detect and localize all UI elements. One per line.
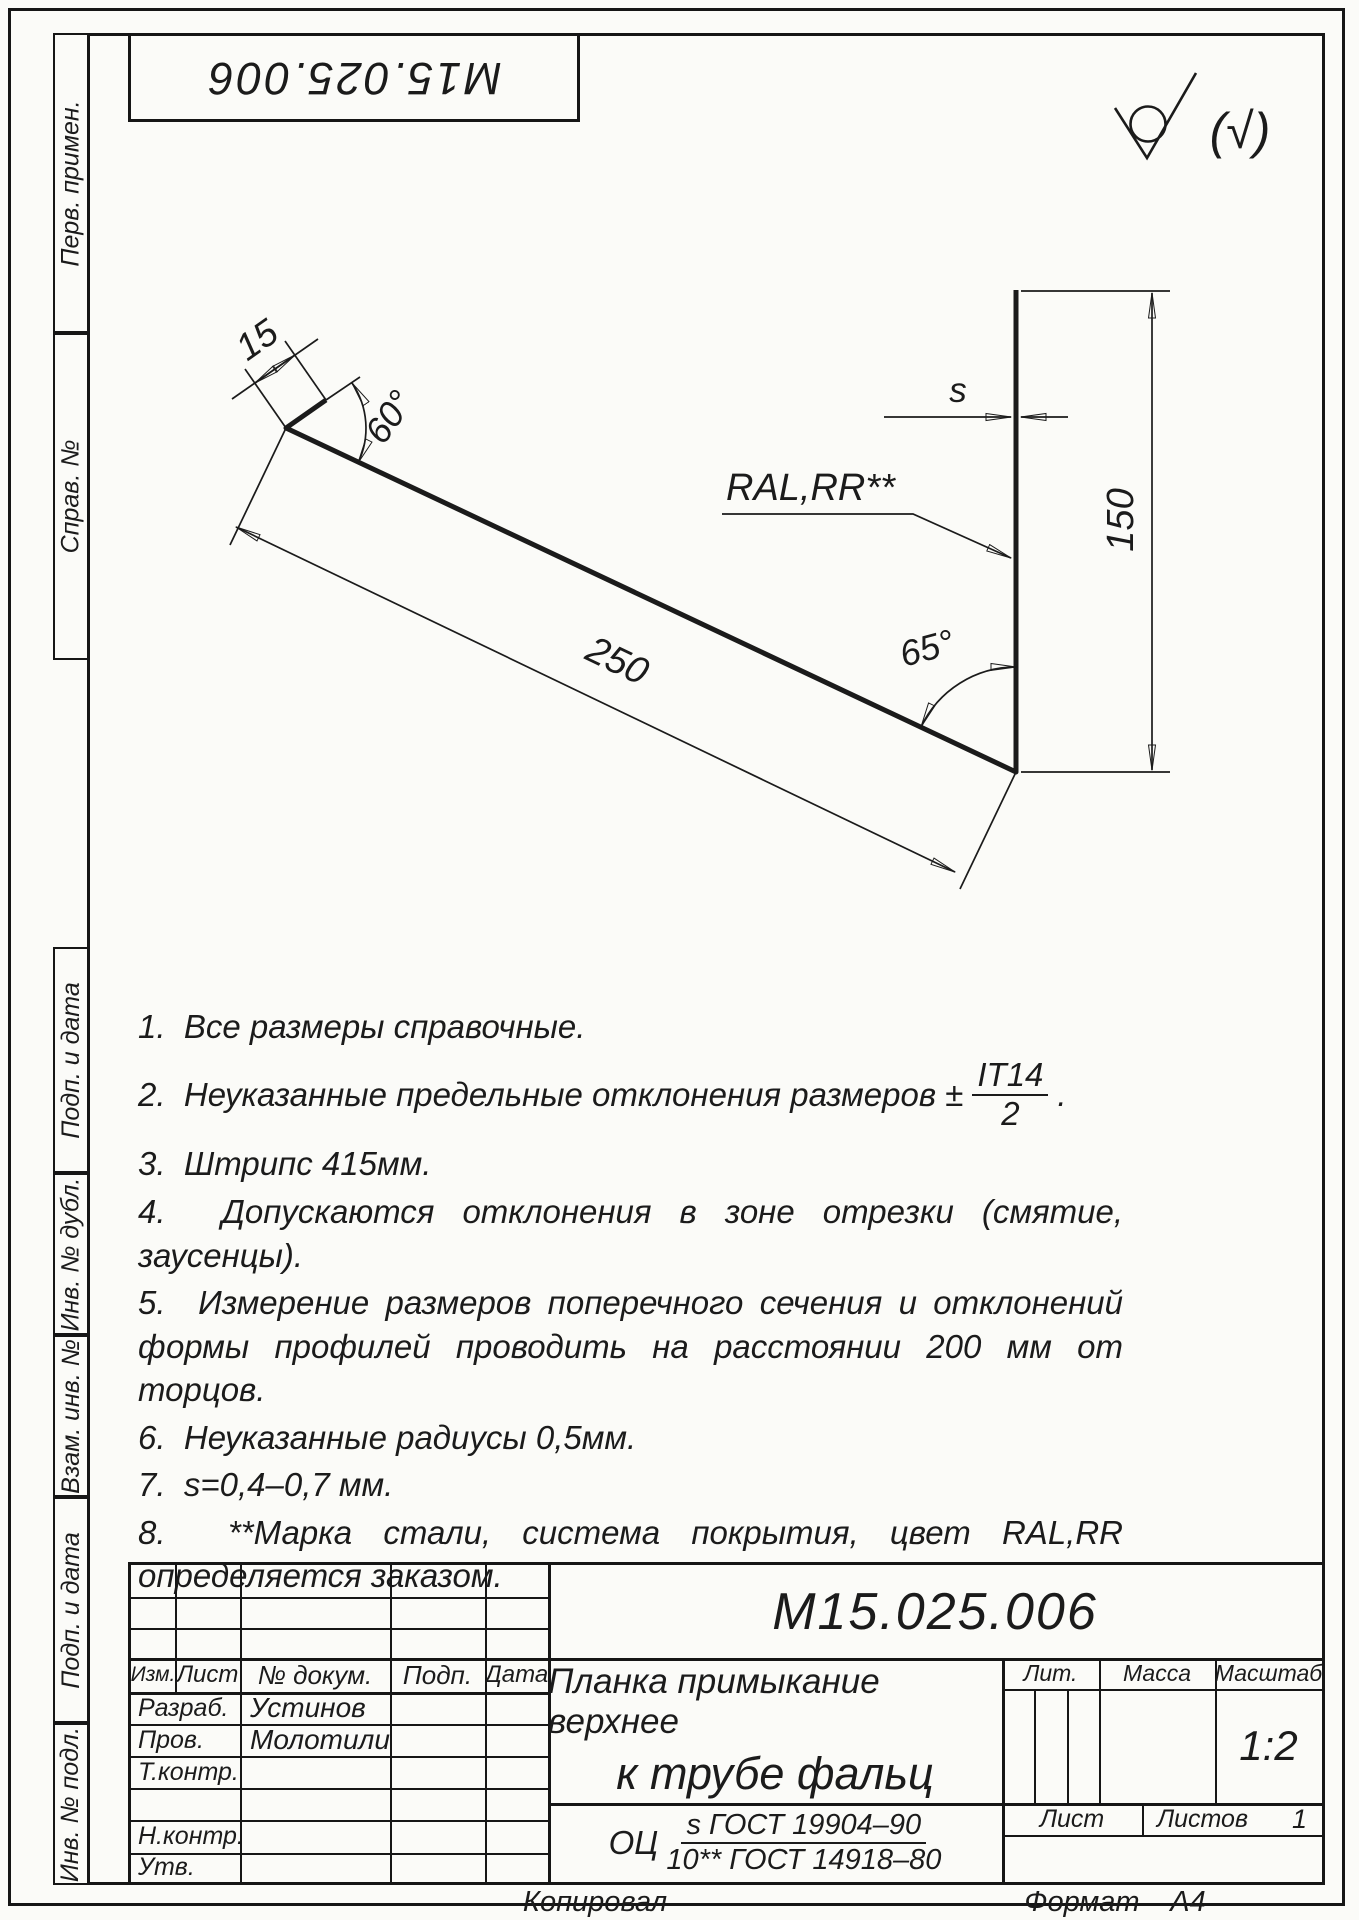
dimension-height-150: 150 — [1021, 291, 1170, 772]
format-label: Формат — [1022, 1886, 1142, 1919]
doc-number: М15.025.006 — [548, 1565, 1322, 1658]
product-name: Планка примыкание верхнее к трубе фальц — [548, 1658, 1002, 1803]
note-2-tolerance-fraction: IT14 2 — [972, 1057, 1048, 1133]
col-header-list: Лист — [175, 1658, 240, 1692]
note-1: 1. Все размеры справочные. — [138, 1005, 1123, 1049]
listov-value: 1 — [1292, 1804, 1307, 1835]
row-label-tkontr: Т.контр. — [131, 1756, 240, 1788]
note-2: 2. Неуказанные предельные отклонения раз… — [138, 1057, 1123, 1133]
note-7: 7. s=0,4–0,7 мм. — [138, 1463, 1123, 1507]
note-2-suffix: . — [1057, 1073, 1066, 1117]
product-name-line2: к трубе фальц — [616, 1748, 933, 1800]
col-header-ndoc: № докум. — [240, 1658, 390, 1692]
scale-value: 1:2 — [1215, 1689, 1322, 1803]
coating-leader: RAL,RR** — [722, 467, 1011, 558]
col-header-data: Дата — [485, 1658, 548, 1692]
dim-text-15: 15 — [228, 311, 286, 368]
designer-name: Устинов — [243, 1692, 390, 1724]
dim-text-150: 150 — [1100, 488, 1142, 551]
dimension-angle-65: 65° — [895, 621, 1016, 727]
listov-label: Листов — [1157, 1805, 1248, 1834]
profile-outline — [286, 290, 1016, 772]
row-label-utv: Утв. — [131, 1853, 240, 1882]
listov-cell: Листов 1 — [1142, 1803, 1322, 1835]
row-label-nkontr: Н.контр. — [131, 1820, 240, 1853]
dimension-angle-60: 60° — [352, 383, 421, 463]
col-header-podp: Подп. — [390, 1658, 485, 1692]
technical-notes: 1. Все размеры справочные. 2. Неуказанны… — [138, 1005, 1123, 1602]
material-frac-denominator: 10** ГОСТ 14918–80 — [666, 1844, 941, 1876]
material-designation: ОЦ s ГОСТ 19904–90 10** ГОСТ 14918–80 — [548, 1803, 1002, 1882]
checker-name: Молотилин — [243, 1724, 390, 1756]
massa-label: Масса — [1099, 1658, 1215, 1689]
drawing-sheet: Перв. примен. Справ. № Подп. и дата Инв.… — [0, 0, 1359, 1920]
dim-text-65: 65° — [895, 621, 958, 675]
col-header-izm: Изм. — [131, 1658, 175, 1692]
dim-text-60: 60° — [356, 383, 421, 451]
note-2-text: 2. Неуказанные предельные отклонения раз… — [138, 1073, 963, 1117]
dimension-flange-15: 15 — [228, 311, 360, 428]
roughness-paren-mark: (√) — [1210, 103, 1271, 159]
format-value: А4 — [1158, 1886, 1218, 1919]
dim-text-s: s — [949, 371, 967, 410]
dim-text-250: 250 — [579, 628, 655, 694]
dimension-length-250: 250 — [230, 428, 1016, 889]
list-label: Лист — [1002, 1803, 1142, 1835]
material-prefix: ОЦ — [609, 1824, 659, 1862]
material-frac-numerator: s ГОСТ 19904–90 — [681, 1809, 926, 1843]
dimension-thickness-s: s — [884, 371, 1068, 417]
note-4: 4. Допускаются отклонения в зоне отрезки… — [138, 1190, 1123, 1277]
kopiroval-label: Копировал — [505, 1886, 685, 1919]
material-fraction: s ГОСТ 19904–90 10** ГОСТ 14918–80 — [666, 1809, 941, 1876]
title-block: Изм. Лист № докум. Подп. Дата Разраб. Ус… — [128, 1562, 1325, 1885]
coating-label: RAL,RR** — [726, 467, 896, 509]
surface-roughness-icon: (√) — [1115, 73, 1270, 159]
note-3: 3. Штрипс 415мм. — [138, 1142, 1123, 1186]
product-name-line1: Планка примыкание верхнее — [548, 1662, 1002, 1742]
lit-label: Лит. — [1002, 1658, 1099, 1689]
fraction-denominator: 2 — [1001, 1096, 1019, 1133]
row-label-razrab: Разраб. — [131, 1692, 240, 1724]
note-6: 6. Неуказанные радиусы 0,5мм. — [138, 1416, 1123, 1460]
note-5: 5. Измерение размеров поперечного сечени… — [138, 1281, 1123, 1412]
masshtab-label: Масштаб — [1215, 1658, 1322, 1689]
fraction-numerator: IT14 — [972, 1057, 1048, 1096]
row-label-prov: Пров. — [131, 1724, 240, 1756]
